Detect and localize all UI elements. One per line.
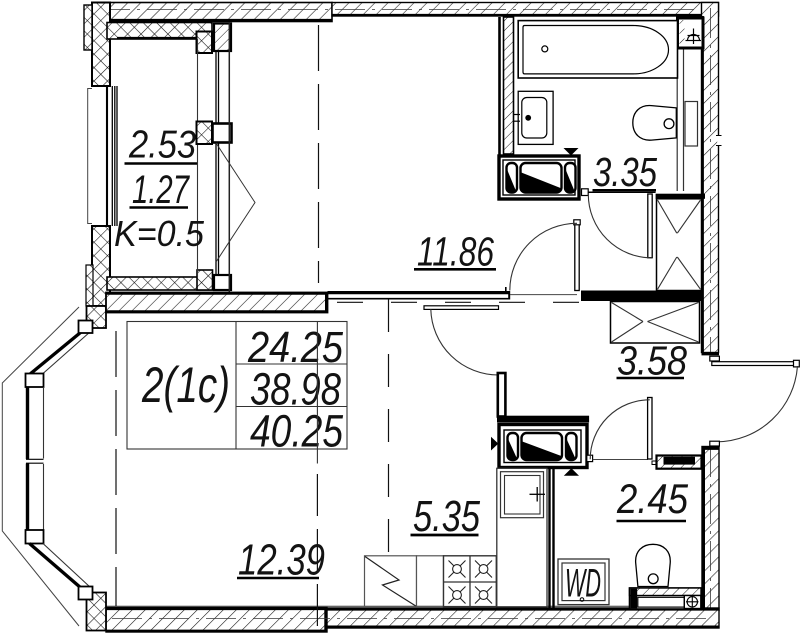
- svg-text:WD: WD: [565, 562, 601, 606]
- svg-text:2.53: 2.53: [128, 123, 196, 166]
- svg-text:K=0.5: K=0.5: [114, 213, 205, 254]
- svg-text:40.25: 40.25: [250, 406, 344, 457]
- svg-text:3.35: 3.35: [593, 149, 657, 195]
- svg-text:3.58: 3.58: [617, 338, 687, 384]
- svg-text:2.45: 2.45: [616, 475, 688, 522]
- svg-text:2(1c): 2(1c): [141, 357, 230, 413]
- svg-text:1.27: 1.27: [132, 168, 190, 212]
- svg-text:11.86: 11.86: [417, 229, 494, 275]
